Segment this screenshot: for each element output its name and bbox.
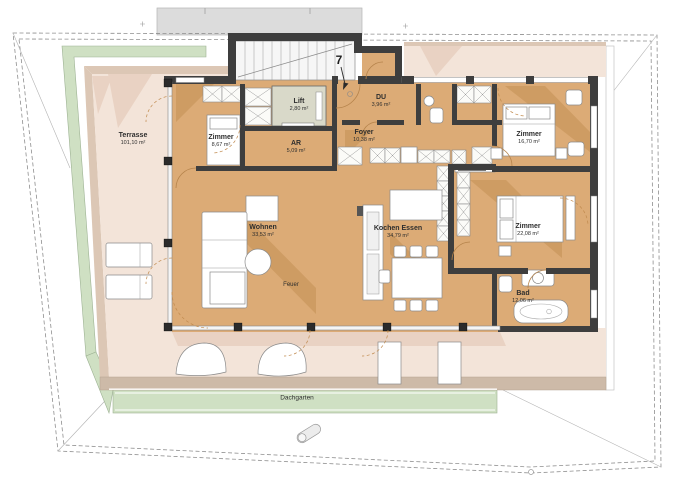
floor-plan-page: Terrasse 101,10 m² Zimmer 8,67 m² Lift 2…: [0, 0, 700, 500]
sun-lounger: [106, 243, 152, 267]
toilet: [499, 276, 512, 292]
chair: [426, 300, 438, 311]
nightstand: [491, 148, 502, 159]
floor-plan-drawing: [0, 0, 700, 500]
sun-lounger: [106, 275, 152, 299]
chair: [410, 246, 422, 257]
stair-tower-roof: [157, 8, 362, 35]
kitchen-island: [390, 190, 442, 220]
fireplace-label: Feuer: [283, 282, 299, 288]
roof-edge-band: [606, 46, 614, 390]
chair: [394, 246, 406, 257]
chair: [568, 142, 584, 156]
shaft-box: [245, 107, 271, 125]
nightstand: [556, 148, 567, 159]
shaft-box: [245, 88, 271, 106]
chair: [410, 300, 422, 311]
door-mat: [438, 342, 461, 384]
door-mat: [378, 342, 401, 384]
nightstand: [499, 246, 511, 256]
chair: [379, 270, 390, 283]
bench: [566, 196, 575, 240]
chair: [394, 300, 406, 311]
chair: [426, 246, 438, 257]
washbasin: [424, 96, 434, 106]
bathtub: [514, 300, 568, 323]
lift-shaft: [245, 86, 326, 126]
bedroom1-furniture: [207, 115, 240, 165]
roof-garden-label: Dachgarten: [280, 395, 314, 402]
chair: [566, 90, 582, 105]
sideboard: [246, 196, 278, 221]
unit-number-label: 7: [336, 53, 343, 67]
cooktop: [401, 147, 417, 163]
vent-pipe: [295, 422, 322, 444]
coffee-table: [245, 249, 271, 275]
dining-table: [392, 258, 442, 298]
toilet: [430, 108, 443, 123]
